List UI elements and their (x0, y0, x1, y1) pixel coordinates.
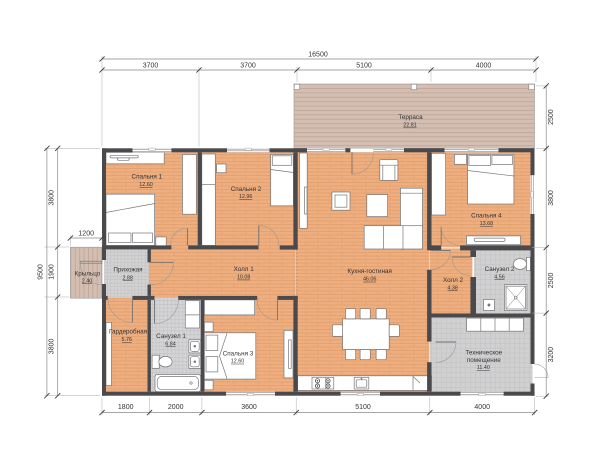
svg-text:3800: 3800 (48, 190, 55, 206)
svg-text:Спальня 1: Спальня 1 (132, 174, 163, 181)
svg-text:3800: 3800 (48, 339, 55, 355)
svg-text:4000: 4000 (476, 63, 492, 70)
svg-text:9500: 9500 (38, 264, 45, 280)
svg-text:помещение: помещение (467, 357, 501, 364)
svg-text:Кухня-гостиная: Кухня-гостиная (347, 268, 392, 275)
svg-text:Крыльцо: Крыльцо (75, 271, 101, 278)
svg-text:16500: 16500 (308, 52, 328, 59)
svg-text:Санузел 2: Санузел 2 (485, 266, 515, 273)
svg-text:4000: 4000 (474, 404, 490, 411)
svg-text:Прихожая: Прихожая (113, 267, 142, 274)
svg-text:5100: 5100 (355, 404, 371, 411)
svg-text:Терраса: Терраса (398, 114, 423, 121)
svg-text:3800: 3800 (548, 190, 555, 206)
svg-text:Спальня 2: Спальня 2 (231, 186, 262, 193)
svg-text:Холл 1: Холл 1 (234, 266, 255, 273)
svg-text:3600: 3600 (241, 404, 257, 411)
svg-text:Гардеробная: Гардеробная (109, 328, 147, 336)
svg-text:3200: 3200 (548, 347, 555, 363)
svg-text:Спальня 3: Спальня 3 (223, 351, 254, 358)
svg-text:1800: 1800 (118, 404, 134, 411)
svg-text:Санузел 1: Санузел 1 (156, 333, 186, 340)
svg-text:3700: 3700 (240, 63, 256, 70)
svg-text:1900: 1900 (48, 264, 55, 280)
svg-text:1200: 1200 (78, 230, 94, 237)
svg-text:5100: 5100 (356, 63, 372, 70)
svg-text:2500: 2500 (548, 273, 555, 289)
svg-text:2000: 2000 (168, 404, 184, 411)
svg-text:Холл 2: Холл 2 (443, 277, 464, 284)
svg-text:Спальня 4: Спальня 4 (471, 213, 502, 220)
svg-text:3700: 3700 (143, 63, 159, 70)
svg-text:Техническое: Техническое (465, 350, 502, 357)
svg-text:2500: 2500 (548, 109, 555, 125)
